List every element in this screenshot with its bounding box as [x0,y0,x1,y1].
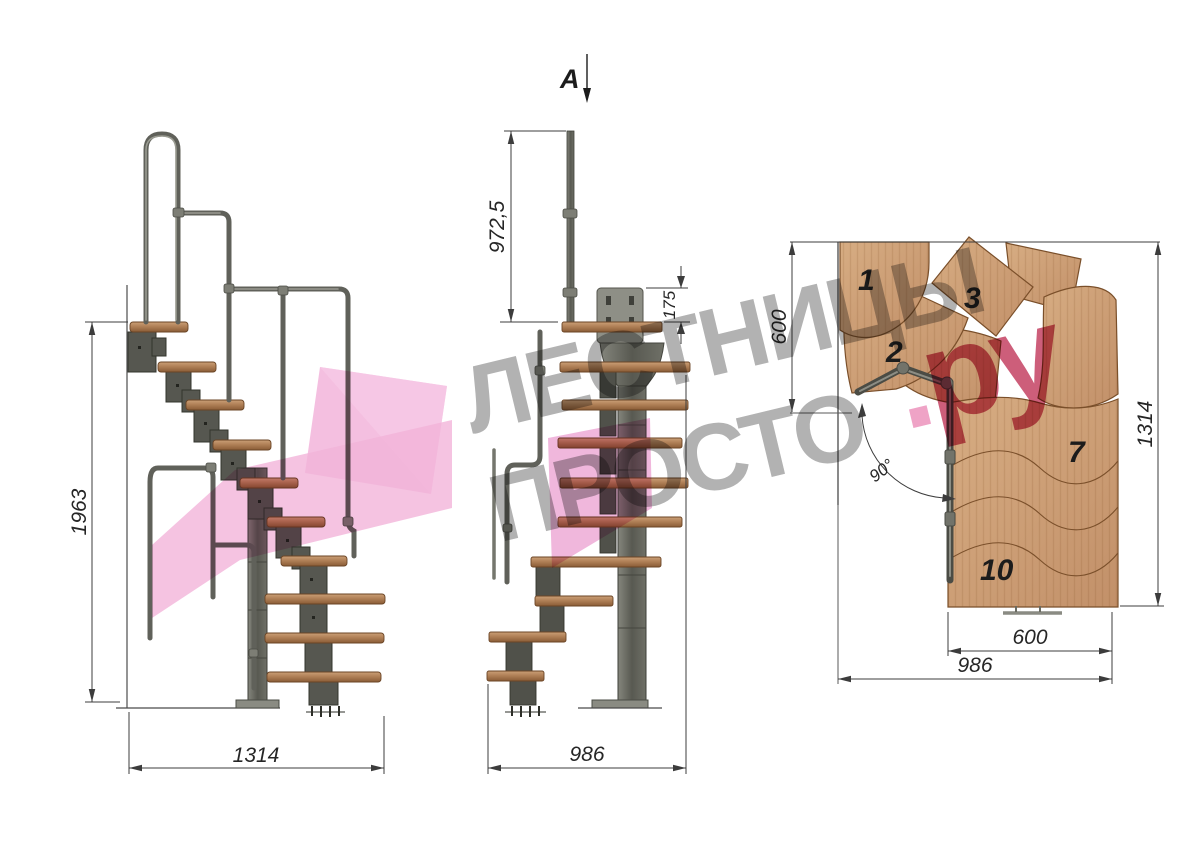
mounting-plate [597,288,643,343]
dim-plan-tread: 600 [1012,626,1047,649]
section-mark-label: A [559,64,580,94]
front-elevation-view: A 972,5 175 986 [486,54,690,774]
drawing-canvas: 1963 1314 [0,0,1200,849]
step-number-7: 7 [1068,436,1086,469]
column-base-plate [592,700,648,708]
dim-plan-depth: 600 [768,309,791,344]
front-handrail [494,332,545,582]
dim-plan-width: 986 [957,654,992,677]
dim-plan-total: 1314 [1134,401,1157,448]
anchor-bolts [505,706,546,717]
dim-side-width: 1314 [233,744,280,767]
dim-front-plate: 175 [660,290,679,319]
column-base-plate [236,700,279,708]
dim-side-height: 1963 [68,488,91,535]
anchor-bolts [306,706,345,717]
step-number-3: 3 [964,282,981,315]
plan-view: 600 1314 600 986 90° 1 2 3 7 10 [768,237,1164,684]
step-number-2: 2 [885,336,903,369]
technical-drawing: 1963 1314 [0,0,1200,849]
dim-front-width: 986 [569,743,604,766]
step-number-10: 10 [980,554,1014,587]
dim-plan-angle: 90° [866,455,898,486]
step-number-1: 1 [858,264,875,297]
dim-front-rail-height: 972,5 [486,200,509,253]
